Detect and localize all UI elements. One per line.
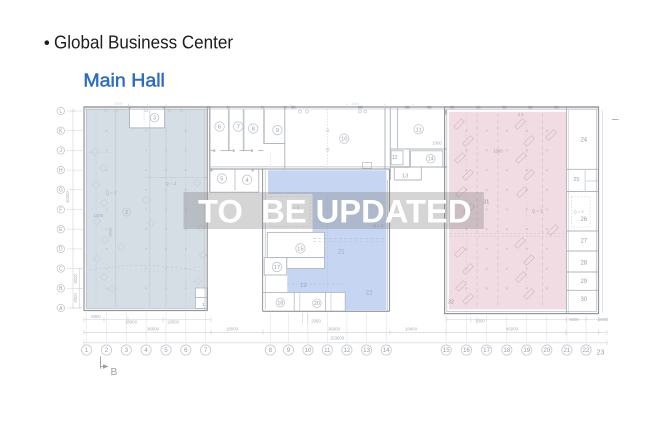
svg-text:1000: 1000 bbox=[493, 149, 503, 154]
svg-text:3: 3 bbox=[153, 116, 156, 122]
svg-text:28: 28 bbox=[580, 261, 587, 267]
svg-text:Q = 3: Q = 3 bbox=[165, 181, 176, 186]
svg-text:20: 20 bbox=[314, 301, 320, 307]
svg-text:26: 26 bbox=[580, 217, 587, 223]
svg-text:2000: 2000 bbox=[311, 318, 321, 323]
svg-text:19: 19 bbox=[300, 282, 307, 289]
svg-text:24: 24 bbox=[580, 137, 587, 143]
svg-text:8: 8 bbox=[252, 127, 255, 133]
svg-text:H: H bbox=[59, 168, 63, 174]
svg-text:G: G bbox=[59, 188, 63, 194]
svg-text:18400: 18400 bbox=[405, 327, 418, 332]
svg-text:29: 29 bbox=[580, 279, 587, 285]
svg-text:30: 30 bbox=[580, 297, 587, 303]
svg-text:14: 14 bbox=[383, 347, 390, 354]
svg-text:18000: 18000 bbox=[125, 319, 138, 324]
svg-text:9: 9 bbox=[287, 347, 291, 354]
svg-text:8: 8 bbox=[269, 347, 273, 354]
svg-text:6: 6 bbox=[218, 125, 221, 131]
svg-text:31: 31 bbox=[483, 199, 489, 205]
svg-text:7: 7 bbox=[204, 347, 208, 354]
svg-text:2: 2 bbox=[105, 347, 109, 354]
svg-text:Global Business Center: Global Business Center bbox=[54, 32, 233, 53]
svg-text:9: 9 bbox=[276, 128, 279, 134]
svg-text:2000: 2000 bbox=[114, 102, 122, 106]
svg-text:B: B bbox=[111, 367, 118, 378]
svg-text:2: 2 bbox=[125, 210, 128, 216]
svg-text:15: 15 bbox=[443, 347, 450, 354]
svg-text:2 3: 2 3 bbox=[518, 112, 524, 117]
svg-text:36000: 36000 bbox=[147, 327, 160, 332]
svg-text:13: 13 bbox=[402, 174, 408, 180]
svg-text:7: 7 bbox=[237, 125, 240, 131]
svg-text:6000: 6000 bbox=[73, 292, 78, 302]
svg-text:36000: 36000 bbox=[328, 327, 341, 332]
svg-text:1000: 1000 bbox=[93, 213, 103, 218]
svg-text:12: 12 bbox=[392, 155, 398, 161]
svg-text:13: 13 bbox=[363, 347, 370, 354]
svg-text:1: 1 bbox=[85, 347, 89, 354]
svg-text:23: 23 bbox=[597, 350, 605, 357]
svg-text:3000: 3000 bbox=[598, 317, 608, 322]
svg-text:D: D bbox=[59, 247, 63, 253]
svg-text:18: 18 bbox=[277, 300, 283, 306]
svg-text:Main Hall: Main Hall bbox=[83, 70, 164, 91]
svg-text:40000: 40000 bbox=[65, 191, 70, 203]
svg-text:18000: 18000 bbox=[226, 327, 239, 332]
svg-text:1000: 1000 bbox=[351, 102, 359, 106]
svg-text:12: 12 bbox=[343, 347, 350, 354]
svg-text:10: 10 bbox=[341, 137, 347, 143]
svg-text:L: L bbox=[59, 109, 62, 115]
svg-text:1000: 1000 bbox=[475, 318, 485, 323]
svg-text:6: 6 bbox=[184, 347, 188, 354]
svg-text:16: 16 bbox=[463, 347, 470, 354]
svg-text:17: 17 bbox=[483, 347, 490, 354]
svg-text:153600: 153600 bbox=[330, 336, 345, 341]
svg-text:21: 21 bbox=[563, 347, 570, 354]
svg-text:5: 5 bbox=[220, 177, 223, 183]
svg-text:6000: 6000 bbox=[73, 273, 78, 283]
svg-text:11: 11 bbox=[324, 347, 331, 354]
svg-text:18000: 18000 bbox=[167, 319, 180, 324]
svg-text:5: 5 bbox=[164, 347, 168, 354]
svg-text:F: F bbox=[59, 207, 62, 213]
svg-text:10: 10 bbox=[304, 347, 311, 354]
svg-text:45000: 45000 bbox=[506, 327, 519, 332]
svg-text:Q = 3: Q = 3 bbox=[532, 209, 543, 214]
svg-text:17: 17 bbox=[274, 265, 280, 271]
svg-text:18: 18 bbox=[503, 347, 510, 354]
svg-text:3: 3 bbox=[125, 347, 129, 354]
svg-text:C: C bbox=[59, 266, 63, 272]
svg-text:27: 27 bbox=[580, 239, 587, 245]
svg-text:19: 19 bbox=[523, 347, 530, 354]
svg-text:TO BE UPDATED: TO BE UPDATED bbox=[198, 193, 472, 230]
svg-text:32: 32 bbox=[448, 300, 454, 306]
svg-text:25: 25 bbox=[573, 177, 579, 183]
svg-text:6000: 6000 bbox=[91, 314, 101, 319]
svg-text:8000: 8000 bbox=[108, 227, 113, 237]
svg-text:Q = 3: Q = 3 bbox=[106, 191, 117, 196]
svg-text:20: 20 bbox=[543, 347, 550, 354]
svg-text:4: 4 bbox=[144, 347, 148, 354]
svg-text:15: 15 bbox=[297, 246, 303, 252]
svg-text:22: 22 bbox=[583, 347, 590, 354]
svg-text:21: 21 bbox=[338, 249, 345, 256]
svg-text:22: 22 bbox=[366, 290, 373, 297]
svg-text:1000: 1000 bbox=[432, 141, 442, 146]
svg-text:Q = 3: Q = 3 bbox=[574, 209, 585, 214]
svg-text:14: 14 bbox=[428, 157, 434, 163]
svg-text:6000: 6000 bbox=[569, 317, 579, 322]
svg-text:11: 11 bbox=[416, 127, 422, 133]
